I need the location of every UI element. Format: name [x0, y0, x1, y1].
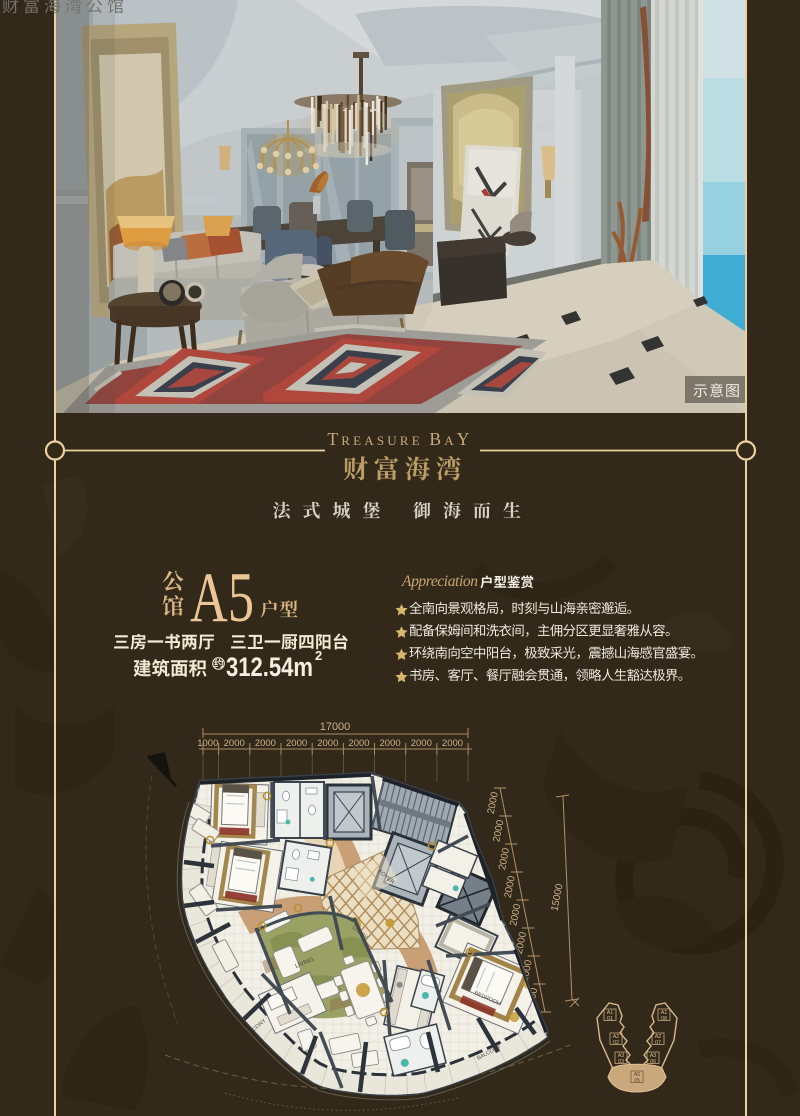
svg-text:17000: 17000	[320, 721, 351, 733]
svg-text:2000: 2000	[255, 738, 276, 749]
svg-text:03: 03	[618, 1059, 624, 1065]
svg-text:1000: 1000	[197, 738, 218, 749]
svg-text:2: 2	[315, 648, 322, 663]
svg-text:02: 02	[613, 1040, 619, 1046]
svg-text:2000: 2000	[503, 875, 518, 899]
svg-text:2000: 2000	[486, 791, 501, 815]
svg-text:2000: 2000	[317, 738, 338, 749]
svg-text:2000: 2000	[348, 738, 369, 749]
svg-text:07: 07	[655, 1040, 661, 1046]
svg-text:15000: 15000	[549, 882, 565, 912]
svg-text:08: 08	[661, 1016, 667, 1022]
svg-text:Appreciation: Appreciation	[401, 573, 478, 590]
svg-text:A5: A5	[190, 559, 254, 637]
svg-text:2000: 2000	[442, 738, 463, 749]
svg-text:312.54m: 312.54m	[226, 652, 313, 682]
svg-text:2000: 2000	[491, 819, 506, 843]
svg-text:01: 01	[607, 1016, 613, 1022]
svg-text:2000: 2000	[224, 738, 245, 749]
svg-text:2000: 2000	[380, 738, 401, 749]
svg-text:2000: 2000	[286, 738, 307, 749]
svg-text:2000: 2000	[508, 903, 523, 927]
svg-text:2000: 2000	[411, 738, 432, 749]
svg-text:2000: 2000	[497, 847, 512, 871]
svg-text:05: 05	[634, 1078, 640, 1084]
svg-text:06: 06	[650, 1059, 656, 1065]
